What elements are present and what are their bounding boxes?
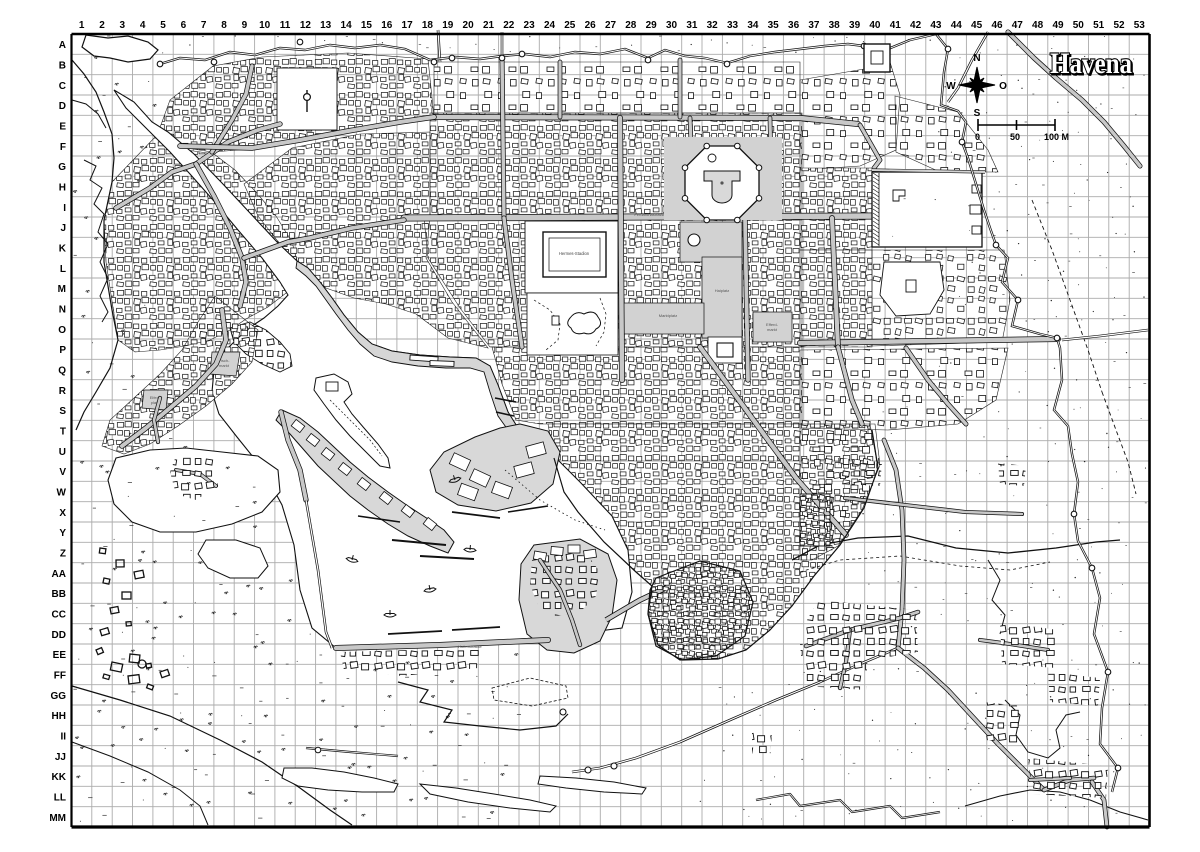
svg-text:FF: FF	[54, 671, 66, 682]
svg-text:14: 14	[341, 20, 353, 31]
svg-text:45: 45	[971, 20, 983, 31]
svg-text:G: G	[58, 162, 66, 173]
svg-text:BB: BB	[52, 589, 66, 600]
svg-text:2: 2	[99, 20, 105, 31]
svg-text:39: 39	[849, 20, 861, 31]
svg-text:33: 33	[727, 20, 739, 31]
svg-text:C: C	[59, 81, 66, 92]
svg-text:B: B	[59, 61, 66, 72]
svg-text:53: 53	[1134, 20, 1146, 31]
svg-text:23: 23	[524, 20, 536, 31]
svg-text:32: 32	[707, 20, 719, 31]
svg-text:I: I	[63, 203, 66, 214]
svg-text:17: 17	[402, 20, 414, 31]
svg-text:Q: Q	[58, 366, 66, 377]
svg-text:1: 1	[79, 20, 85, 31]
svg-text:21: 21	[483, 20, 495, 31]
svg-text:52: 52	[1113, 20, 1125, 31]
svg-text:T: T	[60, 427, 66, 438]
svg-text:W: W	[946, 81, 956, 92]
svg-text:25: 25	[564, 20, 576, 31]
svg-text:13: 13	[320, 20, 332, 31]
svg-text:24: 24	[544, 20, 556, 31]
svg-text:S: S	[59, 406, 66, 417]
svg-text:A: A	[59, 40, 66, 51]
svg-text:K: K	[59, 244, 67, 255]
svg-text:U: U	[59, 447, 66, 458]
svg-text:Y: Y	[59, 528, 66, 539]
svg-text:10: 10	[259, 20, 271, 31]
svg-text:Marktplatz: Marktplatz	[659, 313, 677, 318]
svg-text:Feruardhastrasse: Feruardhastrasse	[634, 212, 666, 217]
svg-text:M: M	[58, 284, 66, 295]
svg-text:11: 11	[280, 20, 291, 31]
svg-text:15: 15	[361, 20, 373, 31]
svg-text:3: 3	[120, 20, 126, 31]
svg-text:28: 28	[625, 20, 637, 31]
svg-text:X: X	[59, 508, 66, 519]
svg-text:41: 41	[890, 20, 902, 31]
svg-text:37: 37	[808, 20, 820, 31]
svg-text:markt: markt	[767, 327, 778, 332]
svg-text:AA: AA	[52, 569, 66, 580]
svg-text:44: 44	[951, 20, 963, 31]
svg-text:GG: GG	[50, 691, 66, 702]
svg-text:E: E	[59, 122, 66, 133]
svg-text:LL: LL	[54, 793, 66, 804]
svg-text:J: J	[60, 223, 66, 234]
svg-text:V: V	[59, 467, 66, 478]
svg-text:MM: MM	[49, 813, 66, 824]
svg-text:6: 6	[181, 20, 187, 31]
svg-text:II: II	[60, 732, 66, 743]
svg-text:49: 49	[1052, 20, 1064, 31]
svg-text:20: 20	[463, 20, 475, 31]
svg-text:18: 18	[422, 20, 434, 31]
svg-text:40: 40	[869, 20, 881, 31]
svg-text:19: 19	[442, 20, 454, 31]
svg-text:35: 35	[768, 20, 780, 31]
svg-text:5: 5	[160, 20, 166, 31]
svg-text:Hermes-Stadion: Hermes-Stadion	[559, 251, 590, 256]
svg-text:31: 31	[686, 20, 698, 31]
svg-text:100 M: 100 M	[1044, 132, 1069, 142]
svg-text:26: 26	[585, 20, 597, 31]
svg-text:L: L	[60, 264, 66, 275]
svg-text:29: 29	[646, 20, 658, 31]
svg-text:D: D	[59, 101, 66, 112]
svg-text:F: F	[60, 142, 66, 153]
svg-text:4: 4	[140, 20, 146, 31]
svg-text:38: 38	[829, 20, 841, 31]
svg-text:36: 36	[788, 20, 800, 31]
svg-text:50: 50	[1010, 132, 1020, 142]
svg-text:W: W	[57, 488, 67, 499]
svg-text:P: P	[59, 345, 66, 356]
svg-text:22: 22	[503, 20, 515, 31]
svg-text:S: S	[974, 108, 981, 119]
svg-text:Haiplatz: Haiplatz	[715, 288, 729, 293]
svg-text:9: 9	[242, 20, 248, 31]
svg-text:27: 27	[605, 20, 617, 31]
svg-text:EE: EE	[53, 650, 67, 661]
svg-text:H: H	[59, 183, 66, 194]
svg-text:Z: Z	[60, 549, 66, 560]
svg-text:51: 51	[1093, 20, 1105, 31]
svg-text:30: 30	[666, 20, 678, 31]
svg-text:34: 34	[747, 20, 759, 31]
svg-text:JJ: JJ	[55, 752, 66, 763]
svg-text:HH: HH	[52, 711, 66, 722]
svg-text:46: 46	[991, 20, 1003, 31]
svg-text:markt: markt	[219, 363, 230, 368]
svg-text:8: 8	[221, 20, 227, 31]
svg-text:CC: CC	[52, 610, 66, 621]
svg-text:16: 16	[381, 20, 393, 31]
svg-text:DD: DD	[52, 630, 66, 641]
svg-text:Havena: Havena	[1050, 47, 1132, 80]
svg-text:42: 42	[910, 20, 922, 31]
svg-text:7: 7	[201, 20, 207, 31]
svg-text:R: R	[59, 386, 67, 397]
svg-text:N: N	[973, 53, 980, 64]
svg-text:O: O	[58, 325, 66, 336]
svg-text:50: 50	[1073, 20, 1085, 31]
svg-text:43: 43	[930, 20, 942, 31]
svg-text:47: 47	[1012, 20, 1024, 31]
svg-text:O: O	[999, 81, 1007, 92]
svg-text:KK: KK	[52, 772, 67, 783]
svg-text:N: N	[59, 305, 66, 316]
svg-text:0: 0	[975, 132, 980, 142]
svg-text:48: 48	[1032, 20, 1044, 31]
svg-text:12: 12	[300, 20, 312, 31]
